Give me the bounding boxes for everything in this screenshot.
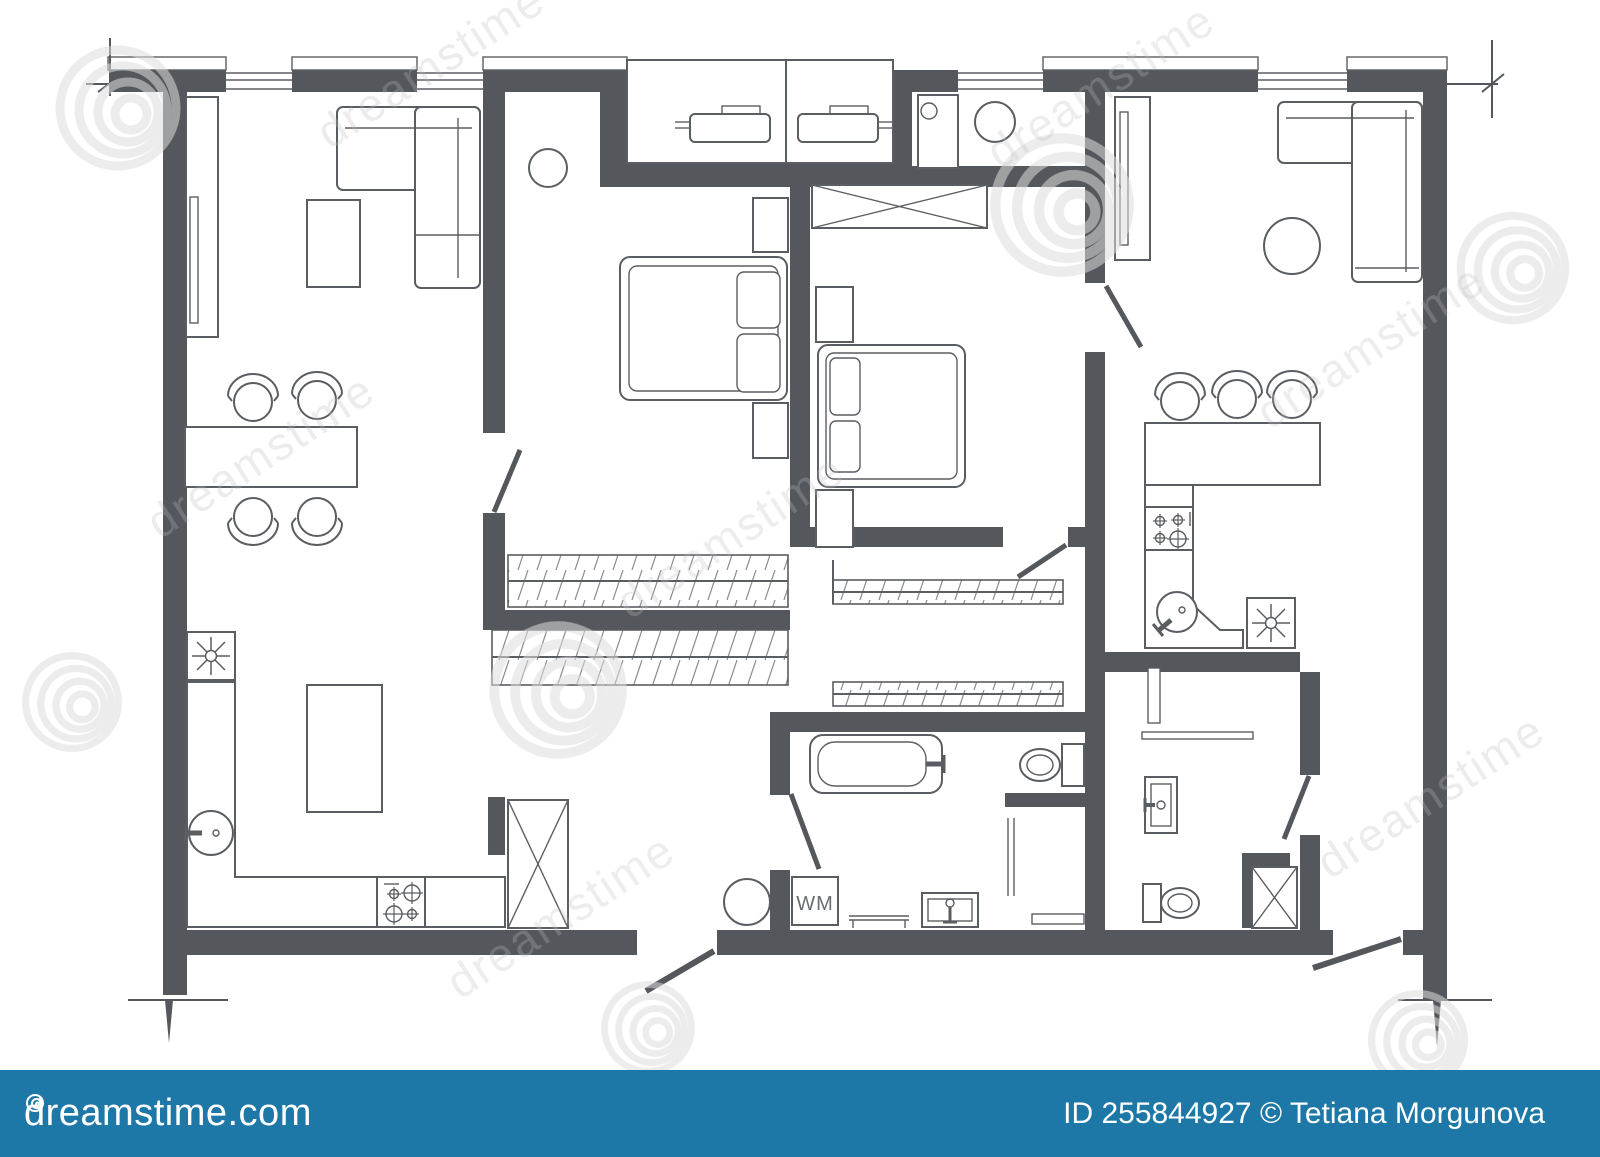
bench-icon [849,916,909,928]
floor-plan-drawing: WM [0,0,1600,1157]
chair-icon [292,498,342,545]
door-bedroom1 [494,450,520,512]
stock-image-preview: WM [0,0,1600,1157]
toilet-icon [1020,744,1084,786]
round-table-icon [1264,218,1320,274]
bar-stool-icon [1155,373,1205,420]
double-bed-icon [620,257,787,400]
door-bathroom2 [1284,776,1309,839]
bar-counter-icon [1145,423,1320,485]
balcony [627,60,893,163]
chair-icon [228,374,278,421]
door-bathroom1 [791,794,819,869]
ceiling-lamp-icon [529,149,567,187]
dreamstime-logo: dreamstime.com [24,1092,312,1135]
crossed-wardrobe-icon [812,185,987,228]
watermark-spiral-icon [26,656,119,749]
nightstand-icon [816,287,853,342]
vanity-sink-icon [922,893,978,927]
gas-stove-icon [377,877,425,927]
shower-glass-icon [1008,818,1084,924]
sink-star-icon [187,632,235,680]
washing-machine-icon: WM [792,877,838,925]
toilet-icon [1143,884,1199,922]
pillow-icon [737,272,780,328]
washing-machine-label: WM [796,893,834,915]
watermark-spiral-icon [60,50,176,166]
coffee-table-icon [307,200,360,287]
watermark-footer-bar: dreamstime.com ID 255844927 © Tetiana Mo… [0,1070,1600,1157]
right-kitchen [1145,485,1295,648]
door-living-right [1106,286,1141,347]
window-sill [483,57,627,70]
sink-star-icon [1247,598,1295,648]
pillow-icon [830,358,860,415]
watermark-spiral-icon [605,985,692,1072]
nightstand-icon [753,198,788,252]
boiler-icon [918,95,958,168]
dreamstime-logo-text: dreamstime.com [24,1092,312,1134]
walk-in-closet [833,560,1063,706]
bathtub-icon [810,735,944,793]
nightstand-icon [753,403,788,458]
bookshelf-icon [186,97,218,337]
shelf-icon [1148,668,1160,723]
bathroom-2 [1142,668,1297,928]
door-closet [1018,545,1066,577]
kitchen-island-icon [307,685,382,812]
chair-icon [228,498,278,545]
window-sill [1347,57,1447,70]
vanity-sink-icon [1145,777,1177,833]
laundry-basket-icon [724,879,770,925]
gas-stove-icon [1145,507,1193,550]
watermark-spiral-icon [494,626,622,754]
image-credit: ID 255844927 © Tetiana Morgunova [1063,1097,1545,1131]
counter-shelf-icon [1142,732,1253,739]
shower-tray-icon [1252,867,1297,928]
pillow-icon [737,334,780,392]
dreamstime-logo-spiral-icon [24,1092,46,1114]
kitchen-counter [1145,485,1193,507]
